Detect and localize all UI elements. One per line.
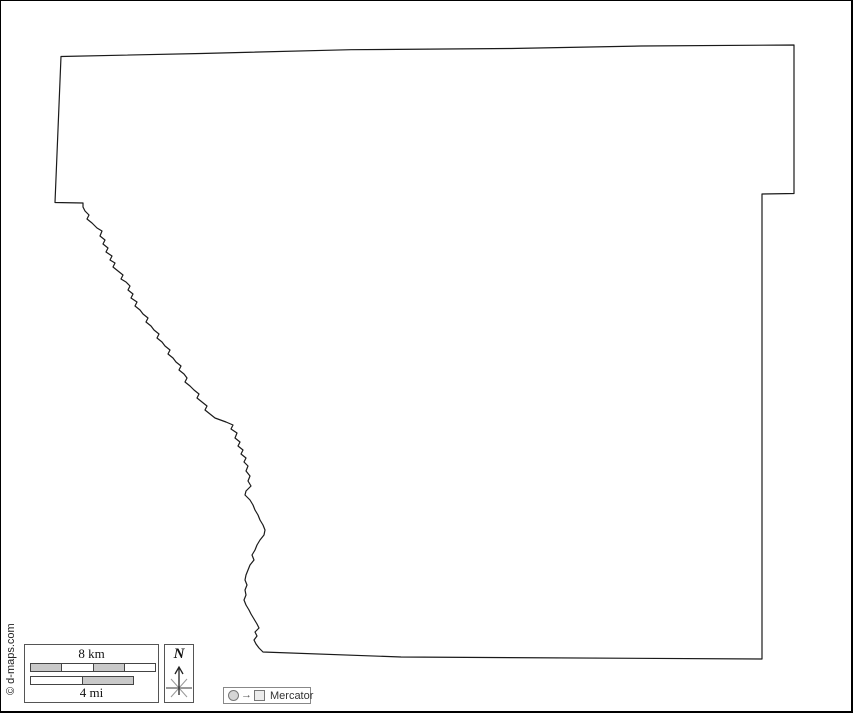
scale-km-segment <box>61 664 92 671</box>
scale-km-segment <box>93 664 124 671</box>
projection-label: Mercator <box>270 690 313 702</box>
sphere-icon <box>228 690 239 701</box>
north-label: N <box>165 646 193 663</box>
compass-icon <box>166 663 192 700</box>
scale-mi-label: 4 mi <box>25 685 158 701</box>
projected-map-icon <box>254 690 265 701</box>
copyright-text: © d-maps.com <box>5 623 17 695</box>
scale-mi-segment <box>82 677 134 684</box>
scale-mi-segment <box>31 677 82 684</box>
north-indicator: N <box>164 644 194 703</box>
scale-km-segment <box>124 664 155 671</box>
scale-bar: 8 km 4 mi <box>24 644 159 703</box>
scale-mi-bar <box>30 676 134 685</box>
projection-legend: → Mercator <box>223 687 311 704</box>
scale-km-bar <box>30 663 156 672</box>
region-outline-svg <box>1 1 853 713</box>
region-outline <box>55 45 794 659</box>
scale-km-label: 8 km <box>25 646 158 662</box>
scale-km-segment <box>31 664 61 671</box>
map-canvas: 8 km 4 mi N → Mercator © d-maps.com <box>0 0 853 713</box>
arrow-right-icon: → <box>241 691 252 700</box>
